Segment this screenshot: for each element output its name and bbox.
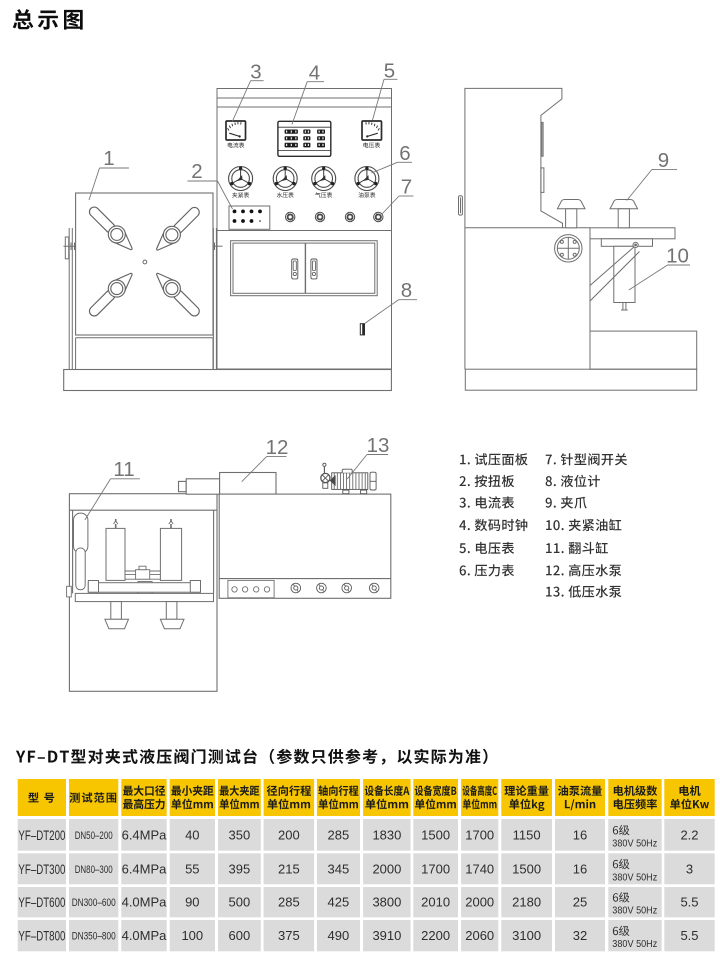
svg-text:1: 1: [103, 147, 114, 170]
svg-text:16: 16: [573, 827, 587, 842]
svg-text:DN300–600: DN300–600: [72, 897, 116, 909]
svg-text:215: 215: [278, 861, 300, 876]
svg-text:4: 4: [309, 62, 320, 85]
svg-text:YF–DT300: YF–DT300: [18, 861, 65, 877]
svg-text:1700: 1700: [421, 861, 450, 876]
svg-text:11: 11: [113, 458, 134, 481]
svg-text:2.2: 2.2: [680, 827, 698, 842]
svg-text:25: 25: [573, 895, 587, 910]
svg-text:55: 55: [185, 861, 199, 876]
svg-text:2: 2: [191, 160, 202, 183]
svg-text:380V 50Hz: 380V 50Hz: [612, 905, 657, 917]
svg-text:DN80–300: DN80–300: [75, 864, 113, 876]
svg-text:375: 375: [278, 928, 300, 943]
svg-text:350: 350: [229, 827, 251, 842]
svg-text:16: 16: [573, 861, 587, 876]
svg-text:32: 32: [573, 928, 587, 943]
svg-text:2000: 2000: [465, 895, 494, 910]
svg-text:YF–DT600: YF–DT600: [18, 894, 65, 910]
svg-text:285: 285: [328, 827, 350, 842]
svg-text:285: 285: [278, 895, 300, 910]
svg-text:90: 90: [185, 895, 199, 910]
svg-text:1150: 1150: [513, 827, 541, 842]
svg-text:600: 600: [229, 928, 251, 943]
svg-text:380V 50Hz: 380V 50Hz: [612, 938, 657, 950]
svg-text:40: 40: [185, 827, 199, 842]
svg-text:6: 6: [399, 142, 410, 165]
svg-text:1740: 1740: [465, 861, 494, 876]
svg-text:2010: 2010: [421, 895, 450, 910]
svg-text:1700: 1700: [465, 827, 494, 842]
svg-text:1830: 1830: [372, 827, 401, 842]
svg-text:425: 425: [328, 895, 350, 910]
svg-text:100: 100: [181, 928, 203, 943]
svg-text:3: 3: [250, 61, 261, 84]
svg-text:500: 500: [229, 895, 251, 910]
svg-text:8: 8: [401, 279, 412, 302]
svg-text:3: 3: [686, 861, 693, 876]
svg-text:200: 200: [278, 827, 300, 842]
svg-text:395: 395: [229, 861, 251, 876]
svg-text:12: 12: [266, 436, 289, 459]
svg-text:1500: 1500: [512, 861, 541, 876]
svg-text:2180: 2180: [512, 895, 541, 910]
svg-text:5.5: 5.5: [680, 895, 698, 910]
svg-text:7: 7: [401, 176, 412, 199]
svg-text:9: 9: [658, 149, 669, 172]
svg-text:4.0MPa: 4.0MPa: [122, 895, 168, 910]
svg-text:490: 490: [328, 928, 350, 943]
svg-text:4.0MPa: 4.0MPa: [122, 928, 168, 943]
svg-text:10: 10: [666, 245, 689, 268]
svg-text:YF–DT200: YF–DT200: [18, 827, 65, 843]
svg-text:3910: 3910: [372, 928, 401, 943]
svg-text:3100: 3100: [512, 928, 541, 943]
svg-text:YF–DT800: YF–DT800: [18, 928, 65, 944]
svg-text:13: 13: [367, 434, 390, 457]
svg-text:5.5: 5.5: [680, 928, 698, 943]
svg-text:2000: 2000: [372, 861, 401, 876]
svg-text:2200: 2200: [421, 928, 450, 943]
svg-text:1500: 1500: [421, 827, 450, 842]
svg-text:345: 345: [328, 861, 350, 876]
svg-text:380V 50Hz: 380V 50Hz: [612, 837, 657, 849]
svg-text:3800: 3800: [372, 895, 401, 910]
svg-text:DN50–200: DN50–200: [75, 830, 113, 842]
svg-text:6.4MPa: 6.4MPa: [122, 827, 168, 842]
svg-text:6.4MPa: 6.4MPa: [122, 861, 168, 876]
svg-text:380V 50Hz: 380V 50Hz: [612, 871, 657, 883]
svg-text:2060: 2060: [465, 928, 494, 943]
svg-text:DN350–800: DN350–800: [72, 931, 116, 943]
